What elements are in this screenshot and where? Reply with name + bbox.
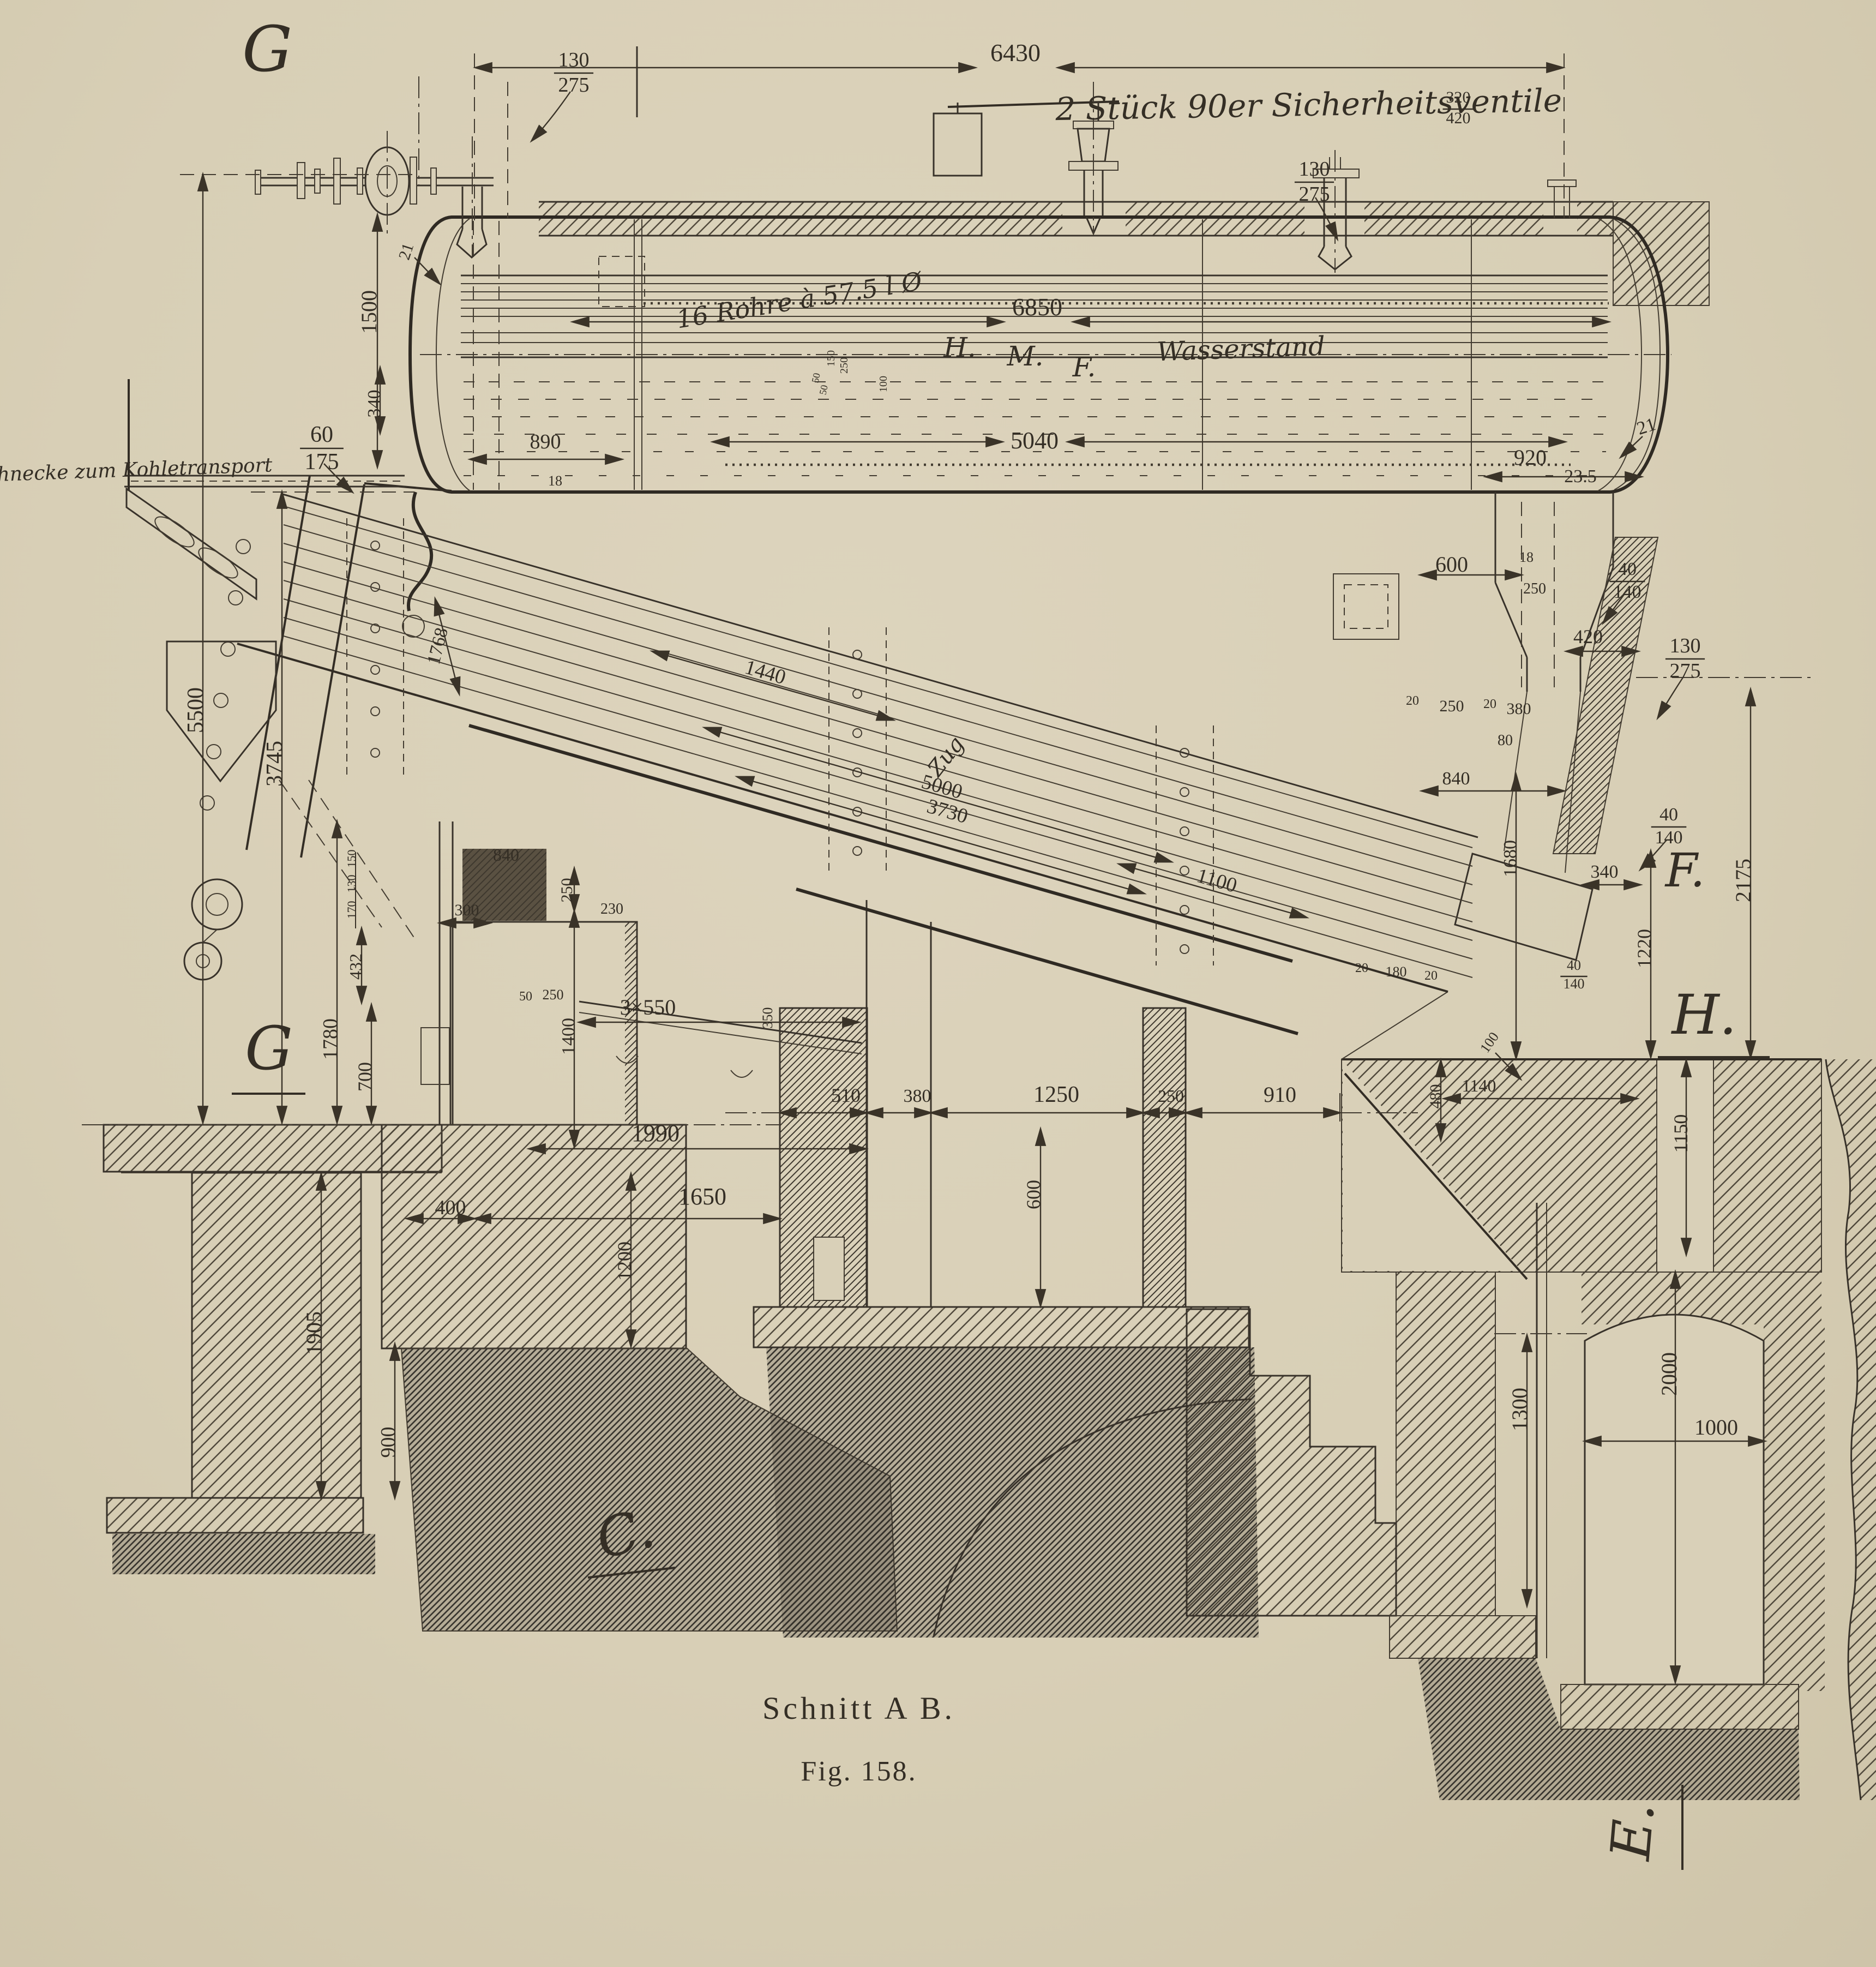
fraction-numerator: 130 bbox=[558, 49, 590, 71]
dim-label: 350 bbox=[760, 1008, 775, 1029]
fraction-denominator: 140 bbox=[1564, 976, 1585, 992]
dim-label: 510 bbox=[831, 1084, 861, 1106]
dim-label: 340 bbox=[364, 390, 384, 418]
dim-label: 80 bbox=[1498, 732, 1513, 749]
dim-label: 910 bbox=[1264, 1082, 1296, 1107]
dim-label: 18 bbox=[548, 473, 562, 489]
fraction-numerator: 40 bbox=[1567, 957, 1581, 973]
safety-valve-note: 2 Stück 90er Sicherheitsventile bbox=[1055, 82, 1562, 128]
dim-label: 1780 bbox=[319, 1018, 342, 1060]
fraction-numerator: 40 bbox=[1618, 559, 1637, 579]
dim-label: 5500 bbox=[183, 687, 208, 733]
fraction-numerator: 130 bbox=[1299, 158, 1330, 181]
dim-label: 250 bbox=[1158, 1086, 1184, 1106]
dim-label: 6850 bbox=[1012, 293, 1062, 321]
dim-label: 1440 bbox=[742, 656, 789, 689]
dim-label: 50 bbox=[519, 990, 532, 1004]
dim-label: 420 bbox=[1573, 626, 1603, 647]
dim-label: 3730 bbox=[924, 795, 971, 828]
dim-label: 1100 bbox=[1194, 864, 1240, 897]
dim-label: 1220 bbox=[1633, 929, 1655, 968]
fraction-denominator: 275 bbox=[1670, 659, 1701, 682]
water-mark-h: H. bbox=[943, 332, 976, 363]
dim-label: 23.5 bbox=[1564, 466, 1597, 487]
dim-label: 230 bbox=[600, 901, 623, 917]
dim-label: 250 bbox=[558, 878, 576, 903]
fraction-denominator: 140 bbox=[1655, 827, 1683, 848]
dim-label: 1000 bbox=[1694, 1415, 1738, 1440]
dim-label: 1300 bbox=[1507, 1388, 1532, 1431]
dim-label: 130 bbox=[345, 875, 358, 893]
section-letter-top: G bbox=[242, 13, 292, 86]
fraction-numerator: 40 bbox=[1659, 805, 1678, 825]
dim-label: 100 bbox=[1477, 1029, 1502, 1056]
dim-label: 5040 bbox=[1011, 427, 1059, 454]
dim-label: 1200 bbox=[614, 1242, 635, 1281]
front-header bbox=[200, 476, 452, 857]
dim-label: 920 bbox=[1514, 445, 1547, 470]
dim-label: 380 bbox=[904, 1086, 931, 1106]
dim-label: 1905 bbox=[302, 1311, 326, 1355]
dim-label: 170 bbox=[345, 901, 358, 919]
dim-label: 380 bbox=[1507, 700, 1531, 718]
dim-label: 1680 bbox=[1500, 840, 1520, 877]
water-mark-m: M. bbox=[1006, 340, 1043, 372]
dim-label: 600 bbox=[1023, 1180, 1044, 1209]
section-caption: Schnitt A B. bbox=[0, 1690, 1718, 1726]
figure-number: Fig. 158. bbox=[0, 1755, 1718, 1788]
fraction-denominator: 140 bbox=[1614, 582, 1641, 602]
figure-number-text: Fig. 158. bbox=[801, 1756, 917, 1787]
section-letter-f: F. bbox=[1664, 844, 1705, 898]
fraction-numerator: 60 bbox=[310, 422, 333, 447]
dim-label: 840 bbox=[1442, 769, 1470, 789]
dim-label: 50 bbox=[817, 384, 829, 396]
tube-bundle bbox=[200, 476, 1478, 1034]
dim-label: 700 bbox=[354, 1062, 376, 1092]
water-level-label: Wasserstand bbox=[1156, 331, 1325, 368]
dim-label: 18 bbox=[1519, 549, 1534, 565]
fraction-denominator: 420 bbox=[1446, 109, 1471, 127]
top-fittings bbox=[255, 46, 1576, 273]
coal-screw-label: Schnecke zum Kohletransport bbox=[0, 454, 273, 487]
dim-label: 150 bbox=[345, 850, 358, 868]
dim-label: 1150 bbox=[1670, 1114, 1692, 1153]
fraction-denominator: 275 bbox=[558, 74, 590, 97]
dim-label: 250 bbox=[1523, 580, 1546, 597]
engraving-page: 6430685050401500218901834015025010050509… bbox=[0, 0, 1876, 1967]
dim-label: 3×550 bbox=[620, 995, 676, 1020]
fraction-denominator: 275 bbox=[1299, 183, 1330, 206]
dim-label: 50 bbox=[809, 372, 822, 384]
dim-label: 6430 bbox=[990, 39, 1041, 67]
dim-label: 1650 bbox=[678, 1183, 726, 1210]
dim-label: 21 bbox=[395, 241, 418, 262]
dim-label: 3745 bbox=[262, 741, 287, 787]
section-letter-g: G bbox=[245, 1014, 293, 1083]
dim-label: 900 bbox=[377, 1427, 400, 1458]
dim-label: 1768 bbox=[424, 626, 452, 667]
dim-label: 1250 bbox=[1033, 1082, 1079, 1107]
dim-label: 250 bbox=[838, 357, 850, 374]
dim-label: 20 bbox=[1424, 969, 1438, 983]
dim-label: 20 bbox=[1483, 697, 1496, 711]
dim-label: 600 bbox=[1435, 552, 1468, 577]
dim-label: 150 bbox=[825, 350, 837, 367]
dim-label: 1400 bbox=[558, 1018, 579, 1055]
feed-valve-assembly bbox=[255, 131, 494, 257]
dim-label: 1990 bbox=[632, 1120, 680, 1147]
dim-label: 300 bbox=[455, 901, 479, 919]
fraction-numerator: 130 bbox=[1670, 634, 1701, 657]
fraction-denominator: 175 bbox=[305, 449, 339, 475]
dim-label: 2000 bbox=[1657, 1352, 1681, 1396]
boiler-section-drawing: 6430685050401500218901834015025010050509… bbox=[0, 0, 1876, 1967]
dim-label: 340 bbox=[1591, 862, 1619, 882]
dim-label: 480 bbox=[1427, 1084, 1445, 1109]
section-letter-e: E. bbox=[1598, 1800, 1667, 1864]
dim-label: 100 bbox=[877, 376, 889, 392]
section-letter-h: H. bbox=[1671, 983, 1737, 1047]
dim-label: 250 bbox=[1440, 697, 1464, 715]
dim-label: 432 bbox=[346, 953, 365, 980]
small-nozzle bbox=[1548, 180, 1576, 218]
dim-label: 250 bbox=[543, 987, 564, 1003]
caption-text: Schnitt A B. bbox=[762, 1690, 955, 1726]
dim-label: 890 bbox=[530, 430, 561, 453]
dim-label: 1500 bbox=[357, 290, 381, 334]
dim-label: 2175 bbox=[1731, 859, 1755, 902]
dim-label: 21 bbox=[1634, 414, 1658, 439]
water-mark-f: F. bbox=[1072, 351, 1096, 383]
dim-label: 20 bbox=[1355, 961, 1368, 975]
dim-label: 400 bbox=[435, 1196, 466, 1219]
dim-label: 1140 bbox=[1462, 1076, 1496, 1095]
dim-label: 180 bbox=[1386, 964, 1407, 980]
dim-label: 840 bbox=[493, 845, 519, 865]
dim-label: 20 bbox=[1406, 694, 1419, 708]
fraction-numerator: 320 bbox=[1446, 88, 1471, 106]
